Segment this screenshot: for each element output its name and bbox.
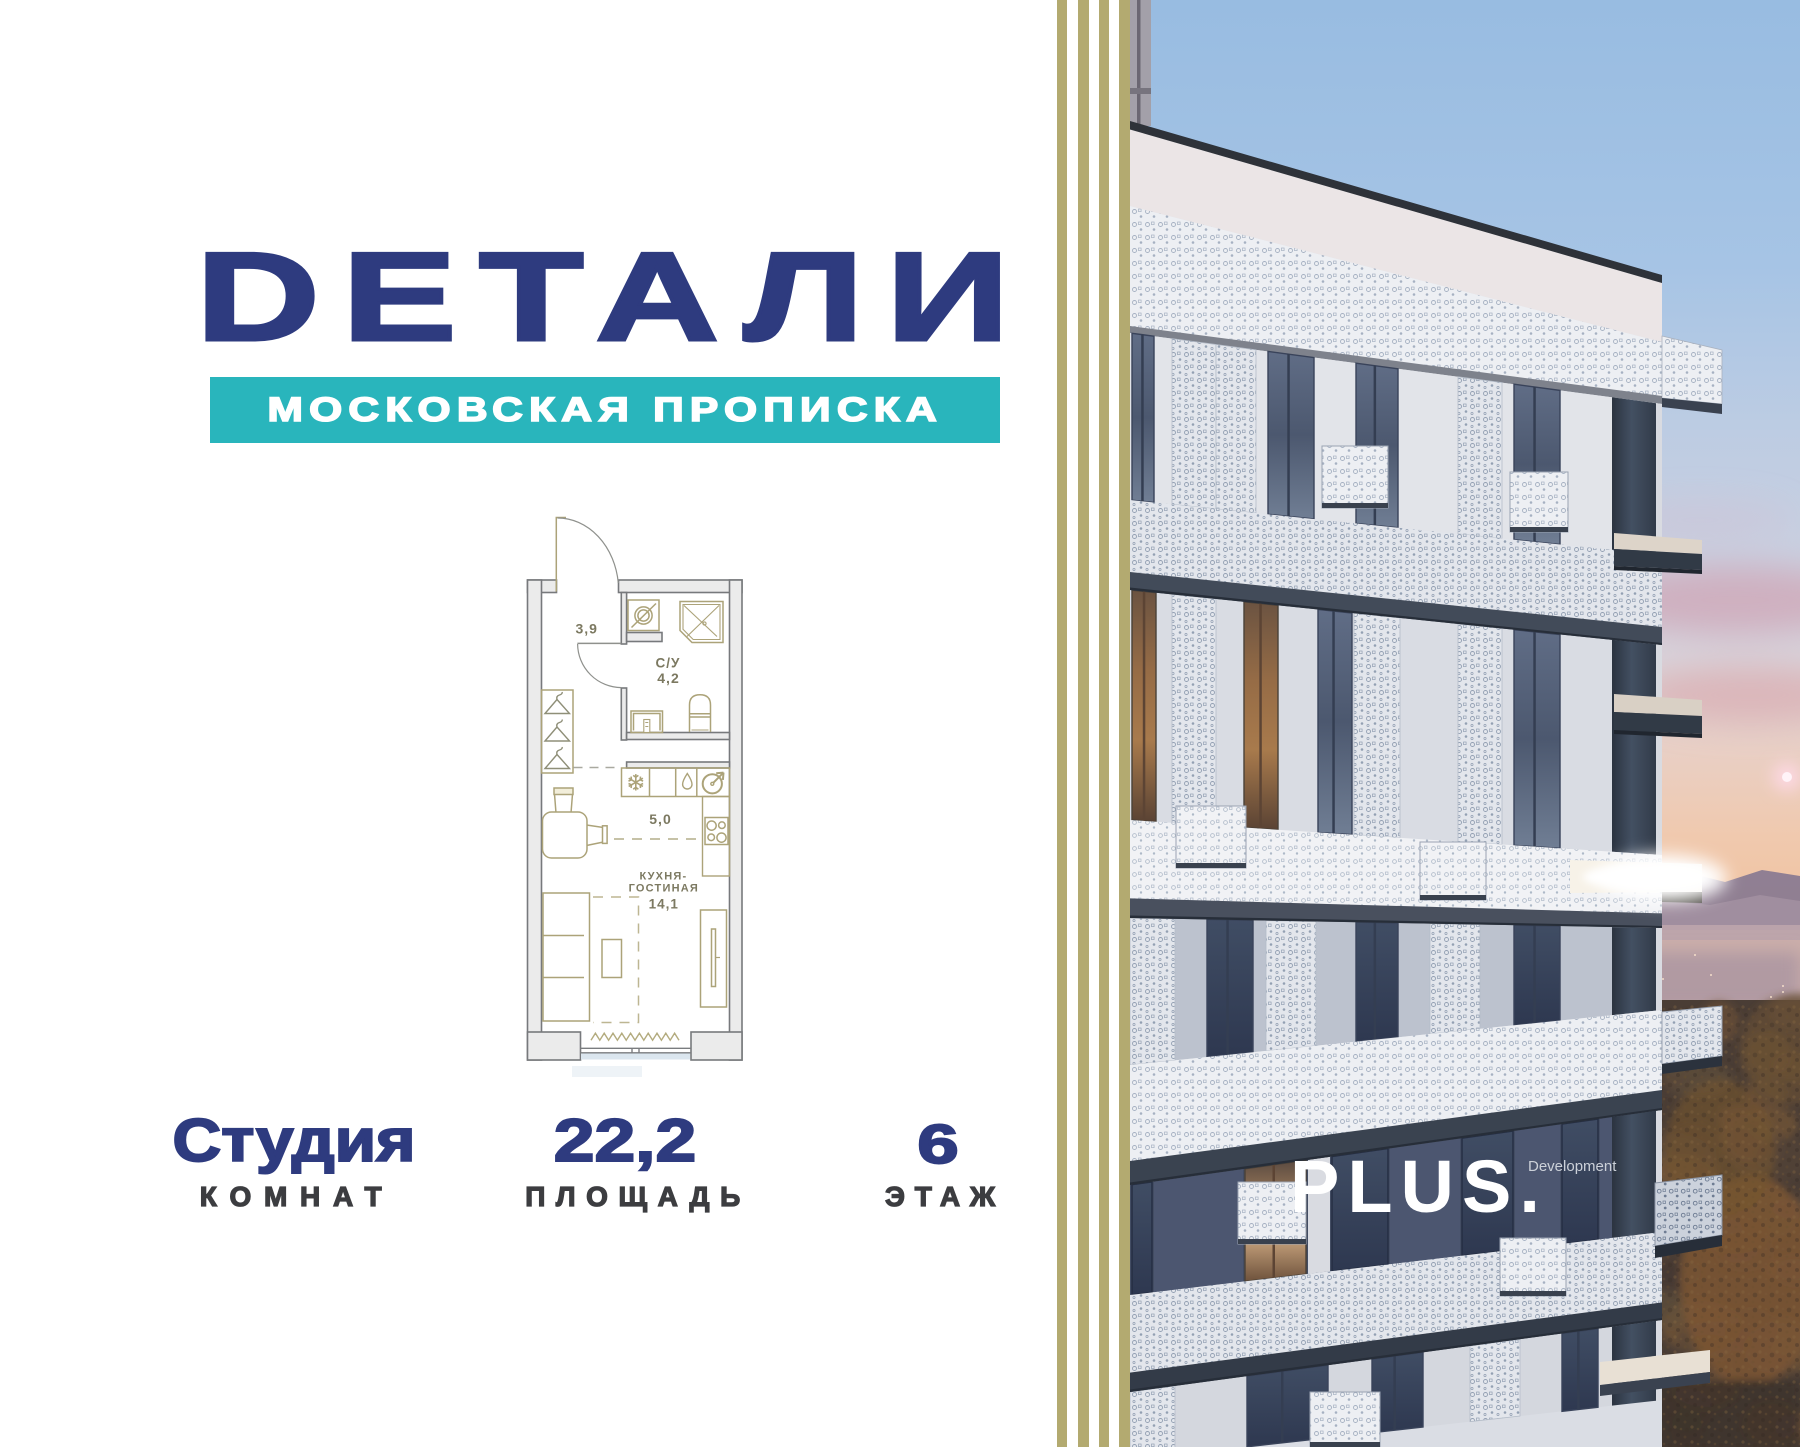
svg-text:4,2: 4,2	[657, 670, 679, 686]
svg-text:С/У: С/У	[656, 656, 681, 671]
svg-text:5,0: 5,0	[649, 811, 671, 827]
svg-text:КУХНЯ-: КУХНЯ-	[639, 871, 687, 883]
svg-text:ГОСТИНАЯ: ГОСТИНАЯ	[629, 883, 699, 895]
svg-text:14,1: 14,1	[649, 897, 679, 912]
svg-text:PLUS.: PLUS.	[1290, 1145, 1548, 1228]
svg-text:3,9: 3,9	[575, 620, 597, 636]
svg-text:Development: Development	[1528, 1158, 1617, 1175]
